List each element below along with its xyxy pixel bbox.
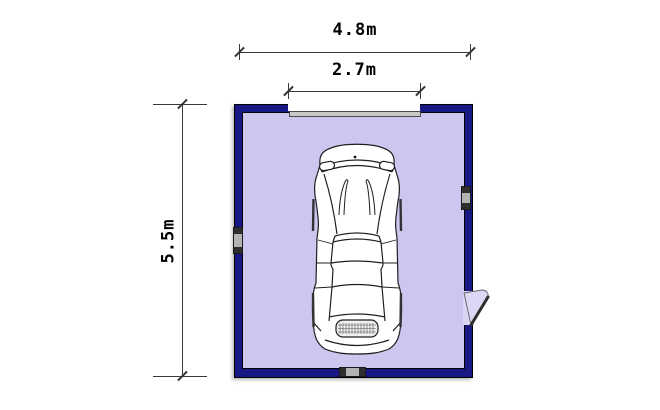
garage-door [289, 111, 421, 117]
dimension-line [239, 52, 471, 53]
vent-frame-cap [359, 368, 365, 376]
window-frame-cap [462, 203, 470, 209]
dimension-line [288, 91, 421, 92]
floor-plan-canvas: 4.8m 2.7m 5.5m [0, 0, 660, 410]
dimension-line [182, 104, 183, 377]
garage-door-opening [288, 101, 420, 111]
right-wall-window [461, 186, 471, 210]
vent-frame-cap [340, 368, 346, 376]
window-frame-cap [234, 247, 242, 253]
dimension-depth-label-wrap: 5.5m [138, 104, 198, 378]
car-top-view [309, 141, 405, 356]
side-door-swing [461, 285, 495, 331]
window-frame-cap [462, 187, 470, 193]
left-wall-window [233, 227, 243, 254]
bottom-wall-vent [339, 367, 366, 377]
dimension-overall-depth-label: 5.5m [158, 219, 178, 264]
dimension-overall-width-label: 4.8m [239, 20, 471, 40]
dimension-door-opening-label: 2.7m [288, 60, 421, 80]
window-frame-cap [234, 228, 242, 234]
